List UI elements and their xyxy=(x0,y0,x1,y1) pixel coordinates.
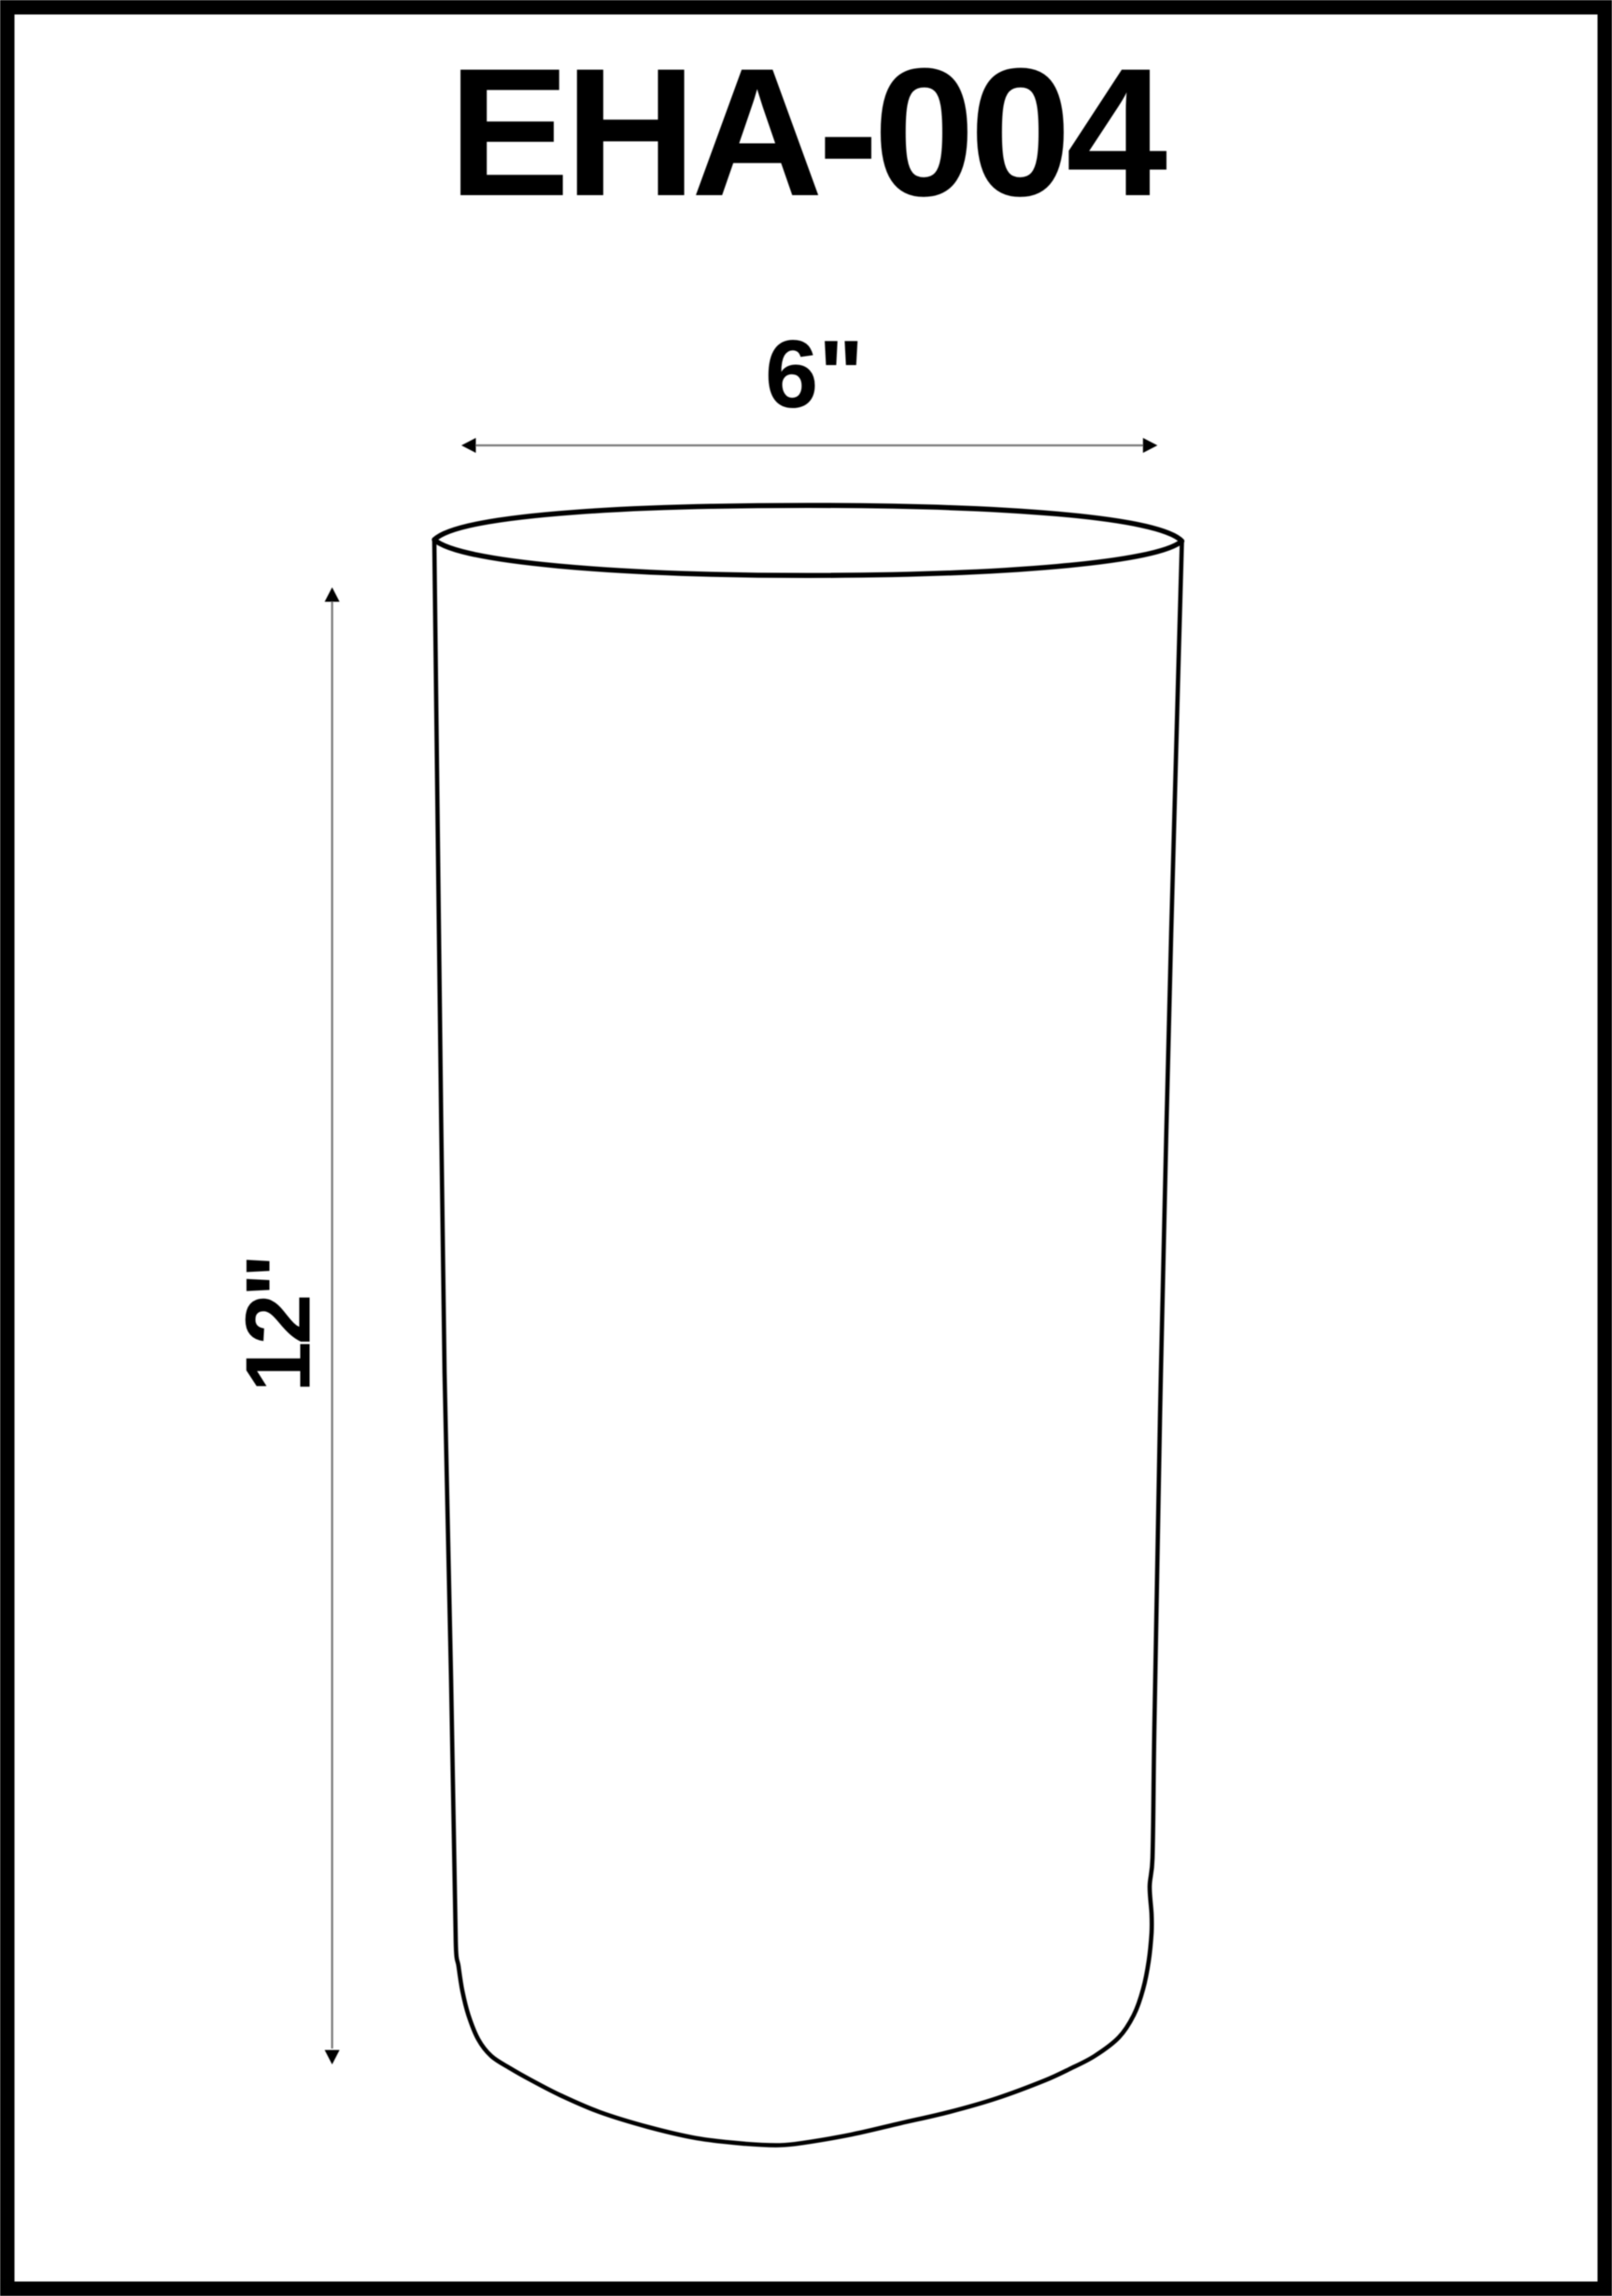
svg-text:6": 6" xyxy=(765,320,864,428)
svg-text:12": 12" xyxy=(227,1257,330,1392)
svg-text:EHA-004: EHA-004 xyxy=(448,31,1167,234)
